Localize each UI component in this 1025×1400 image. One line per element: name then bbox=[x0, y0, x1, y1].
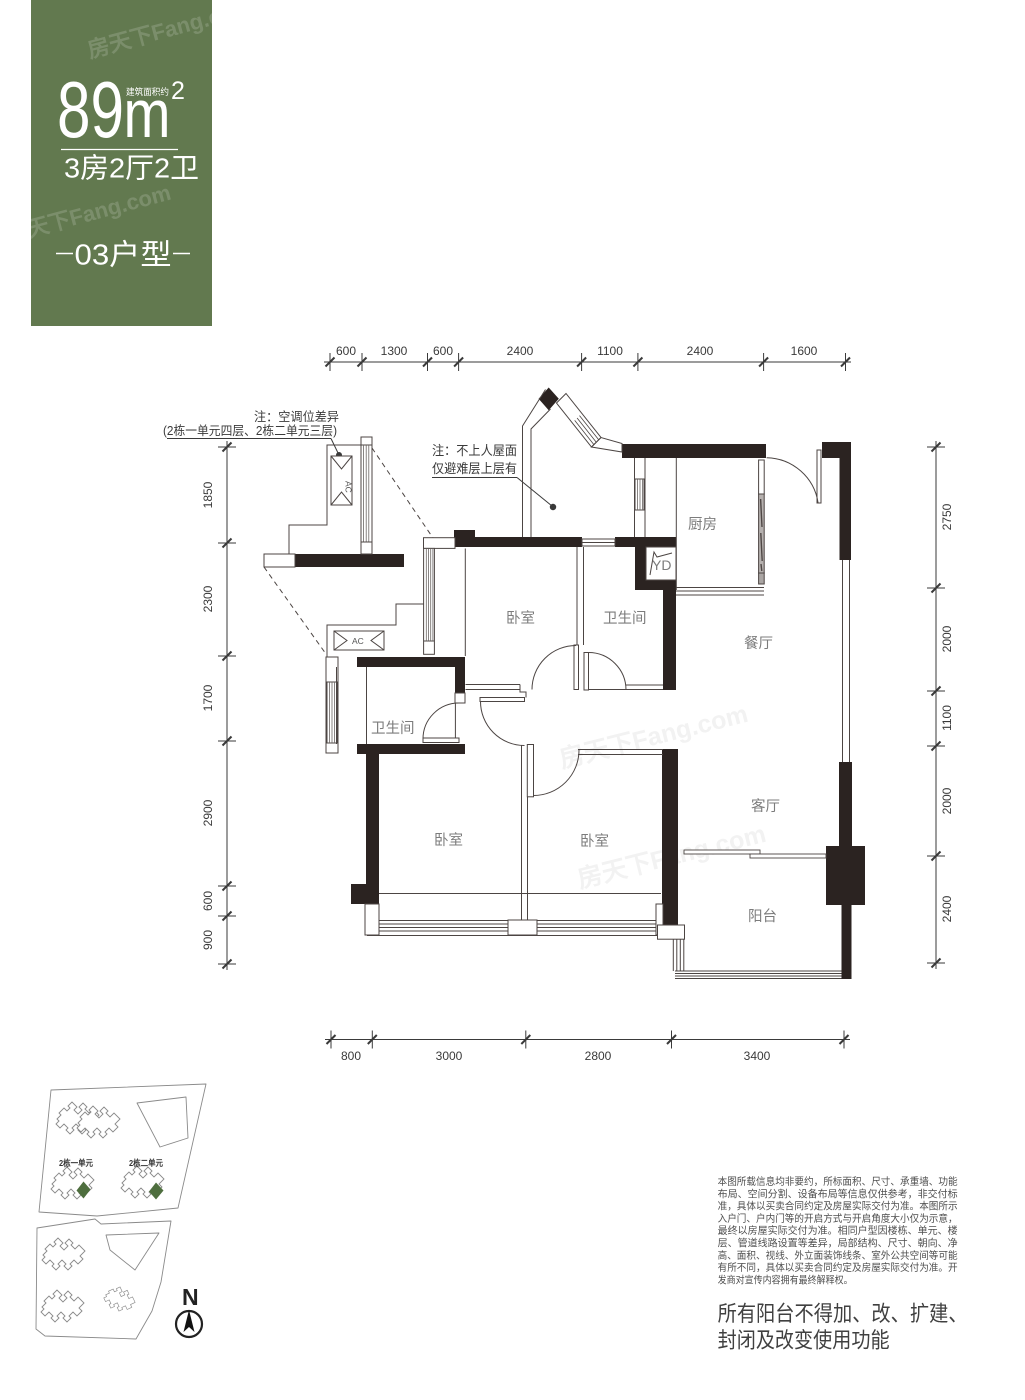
svg-text:入户门、户内门等的开启方式与开启角度大小仅为示意，: 入户门、户内门等的开启方式与开启角度大小仅为示意， bbox=[718, 1212, 958, 1225]
svg-text:1100: 1100 bbox=[597, 344, 623, 358]
svg-text:2000: 2000 bbox=[940, 625, 954, 652]
svg-text:2400: 2400 bbox=[940, 895, 954, 922]
svg-text:厨房: 厨房 bbox=[688, 516, 717, 533]
svg-text:2400: 2400 bbox=[687, 344, 714, 358]
svg-text:800: 800 bbox=[341, 1049, 361, 1063]
svg-text:1300: 1300 bbox=[381, 344, 408, 358]
svg-text:布局、空间分割、设备布局等信息仅供参考，非交付标: 布局、空间分割、设备布局等信息仅供参考，非交付标 bbox=[718, 1187, 958, 1200]
svg-text:准，具体以买卖合同约定及房屋实际交付为准。本图所示: 准，具体以买卖合同约定及房屋实际交付为准。本图所示 bbox=[718, 1200, 958, 1213]
svg-text:卧室: 卧室 bbox=[434, 832, 463, 849]
svg-text:600: 600 bbox=[201, 891, 215, 911]
svg-text:YD: YD bbox=[652, 557, 671, 573]
svg-text:阳台: 阳台 bbox=[748, 908, 777, 925]
svg-text:1700: 1700 bbox=[201, 684, 215, 711]
svg-text:1100: 1100 bbox=[940, 705, 954, 731]
svg-text:3400: 3400 bbox=[744, 1049, 771, 1063]
svg-text:最终以房屋实际交付为准。相同户型因楼栋、单元、楼: 最终以房屋实际交付为准。相同户型因楼栋、单元、楼 bbox=[718, 1224, 958, 1237]
svg-text:层、管道线路设置等差异，局部结构、尺寸、朝向、净: 层、管道线路设置等差异，局部结构、尺寸、朝向、净 bbox=[718, 1237, 958, 1250]
svg-text:仅避难层上层有: 仅避难层上层有 bbox=[432, 461, 517, 476]
svg-text:2750: 2750 bbox=[940, 503, 954, 530]
svg-text:卫生间: 卫生间 bbox=[371, 720, 415, 737]
svg-text:2400: 2400 bbox=[507, 344, 534, 358]
svg-text:2000: 2000 bbox=[940, 787, 954, 814]
svg-text:封闭及改变使用功能: 封闭及改变使用功能 bbox=[718, 1328, 890, 1352]
svg-text:2栋一单元: 2栋一单元 bbox=[59, 1158, 93, 1168]
svg-text:客厅: 客厅 bbox=[751, 798, 780, 815]
svg-text:建筑面积约: 建筑面积约 bbox=[126, 86, 169, 97]
svg-text:2: 2 bbox=[171, 77, 185, 105]
svg-text:所有阳台不得加、改、扩建、: 所有阳台不得加、改、扩建、 bbox=[718, 1302, 968, 1326]
svg-text:1600: 1600 bbox=[791, 344, 818, 358]
svg-text:2800: 2800 bbox=[585, 1049, 612, 1063]
svg-text:高、面积、视线、外立面装饰线条、室外公共空间等可能: 高、面积、视线、外立面装饰线条、室外公共空间等可能 bbox=[718, 1249, 958, 1262]
svg-text:600: 600 bbox=[336, 344, 356, 358]
svg-text:餐厅: 餐厅 bbox=[744, 635, 773, 652]
svg-text:N: N bbox=[182, 1284, 199, 1310]
svg-text:AC: AC bbox=[344, 481, 354, 493]
svg-text:(2栋一单元四层、2栋二单元三层): (2栋一单元四层、2栋二单元三层) bbox=[163, 423, 337, 438]
svg-text:AC: AC bbox=[352, 636, 364, 646]
svg-text:900: 900 bbox=[201, 930, 215, 950]
svg-text:有所不同，具体以买卖合同约定及房屋实际交付为准。开: 有所不同，具体以买卖合同约定及房屋实际交付为准。开 bbox=[718, 1261, 958, 1274]
svg-text:2栋二单元: 2栋二单元 bbox=[129, 1158, 163, 1168]
svg-text:3000: 3000 bbox=[436, 1049, 463, 1063]
svg-text:本图所载信息均非要约，所标面积、尺寸、承重墙、功能: 本图所载信息均非要约，所标面积、尺寸、承重墙、功能 bbox=[718, 1175, 958, 1188]
svg-text:2900: 2900 bbox=[201, 799, 215, 826]
svg-text:03户型: 03户型 bbox=[75, 239, 172, 272]
svg-text:注：空调位差异: 注：空调位差异 bbox=[254, 409, 339, 424]
svg-text:89: 89 bbox=[57, 65, 124, 154]
svg-text:1850: 1850 bbox=[201, 481, 215, 508]
svg-text:注：不上人屋面: 注：不上人屋面 bbox=[432, 443, 517, 458]
svg-text:卫生间: 卫生间 bbox=[603, 610, 647, 627]
svg-text:3房2厅2卫: 3房2厅2卫 bbox=[64, 153, 199, 184]
svg-text:600: 600 bbox=[433, 344, 453, 358]
svg-text:卧室: 卧室 bbox=[580, 833, 609, 850]
svg-text:卧室: 卧室 bbox=[506, 610, 535, 627]
svg-text:2300: 2300 bbox=[201, 585, 215, 612]
svg-text:发商对宣传内容拥有最终解释权。: 发商对宣传内容拥有最终解释权。 bbox=[718, 1273, 853, 1286]
